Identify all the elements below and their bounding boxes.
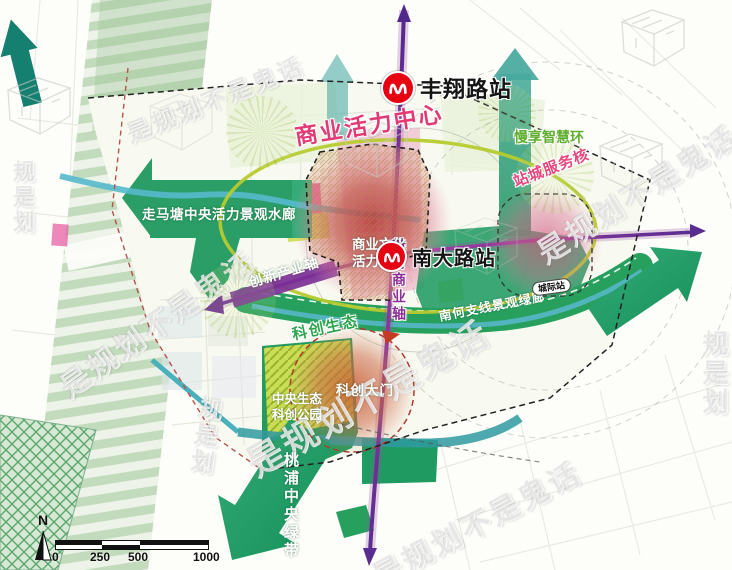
metro-logo-icon bbox=[376, 241, 407, 272]
scale-tick: 1000 bbox=[193, 550, 220, 564]
station-name: 南大路站 bbox=[412, 242, 496, 271]
planning-map: 是规划不是鬼话 是规划不是鬼话 是规划不是鬼话 是规划不是鬼话 是规划不是鬼话 … bbox=[0, 0, 732, 570]
scale-bar: 0 250 500 1000 bbox=[55, 538, 215, 564]
magenta-block-small bbox=[51, 223, 68, 246]
scale-tick: 500 bbox=[128, 550, 148, 564]
station-name: 丰翔路站 bbox=[420, 72, 512, 104]
north-label: N bbox=[26, 512, 60, 528]
map-graphics bbox=[0, 0, 732, 570]
scale-tick: 0 bbox=[52, 550, 59, 564]
scale-tick: 250 bbox=[90, 550, 110, 564]
core-scitech bbox=[288, 326, 416, 454]
scale-bar-frame bbox=[55, 540, 209, 550]
station-nanda: 南大路站 bbox=[376, 241, 496, 272]
teal-arrow-top-left bbox=[0, 15, 51, 110]
station-fengxiang: 丰翔路站 bbox=[381, 71, 512, 105]
metro-logo-icon bbox=[381, 71, 415, 105]
